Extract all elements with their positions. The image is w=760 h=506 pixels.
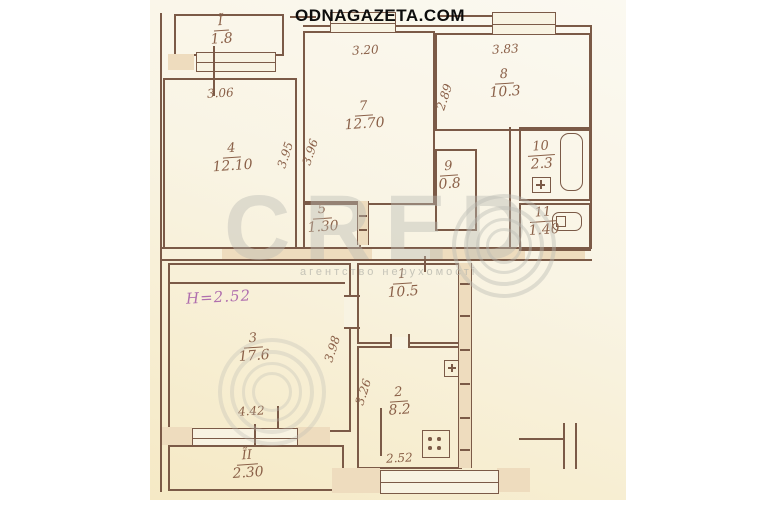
label-pantry-9: 9 0.8 xyxy=(437,159,461,193)
dim-3-83: 3.83 xyxy=(492,41,519,56)
label-balcony-2: ĨI 2.30 xyxy=(231,448,264,483)
stove-icon xyxy=(422,430,450,458)
floor-plan-photo: ODNAGAZETA.COM xyxy=(0,0,760,506)
balcony-1-window xyxy=(196,52,276,72)
balcony-2-sill-fill xyxy=(296,427,330,445)
porch-wall-fill xyxy=(332,468,380,493)
room-3-inner-top-line xyxy=(170,282,345,284)
door-tick xyxy=(408,334,410,348)
label-room-4: 4 12.10 xyxy=(211,141,253,176)
site-banner: ODNAGAZETA.COM xyxy=(0,6,760,26)
mid-band-lower-line xyxy=(162,259,592,261)
dim-3-06: 3.06 xyxy=(207,85,234,100)
mid-wall-fill xyxy=(430,249,525,259)
label-kitchen-2: 2 8.2 xyxy=(387,385,411,419)
hall-kitchen-right-wall xyxy=(458,263,472,468)
porch-window xyxy=(380,470,499,494)
dim-4-42: 4.42 xyxy=(238,403,265,418)
balcony-2-door-tick xyxy=(254,424,256,445)
dim-3-20: 3.20 xyxy=(352,42,379,57)
ceiling-height-note: H=2.52 xyxy=(186,286,252,307)
washbasin-icon xyxy=(532,177,551,193)
dim-extension-line xyxy=(380,408,382,456)
porch-corner-wall xyxy=(519,438,565,440)
bathroom-corridor-wall xyxy=(509,127,511,247)
door-tick xyxy=(390,334,392,348)
label-room-8: 8 10.3 xyxy=(488,67,521,102)
label-room-7: 7 12.70 xyxy=(343,99,385,134)
closet-5-side-wall xyxy=(357,201,369,245)
label-closet-5: 5 1.30 xyxy=(306,202,339,237)
balcony-2-sill-fill xyxy=(162,427,192,445)
label-wc-11: 11 1.40 xyxy=(527,205,560,240)
label-hall-1: 1 10.5 xyxy=(386,267,419,302)
dim-2-52: 2.52 xyxy=(386,450,413,465)
bathtub-icon xyxy=(560,133,583,191)
label-room-3: 3 17.6 xyxy=(237,331,270,366)
porch-wall-fill xyxy=(497,468,530,492)
porch-corner-wall xyxy=(563,423,565,469)
label-bathroom-10: 10 2.3 xyxy=(527,139,556,173)
outer-wall-left xyxy=(160,13,162,492)
mid-wall-fill xyxy=(222,249,372,259)
hall-kitchen-door-gap xyxy=(391,337,408,349)
balcony-1-sill-fill xyxy=(168,54,194,70)
entry-door-tick xyxy=(424,256,426,272)
porch-corner-wall xyxy=(575,423,577,469)
